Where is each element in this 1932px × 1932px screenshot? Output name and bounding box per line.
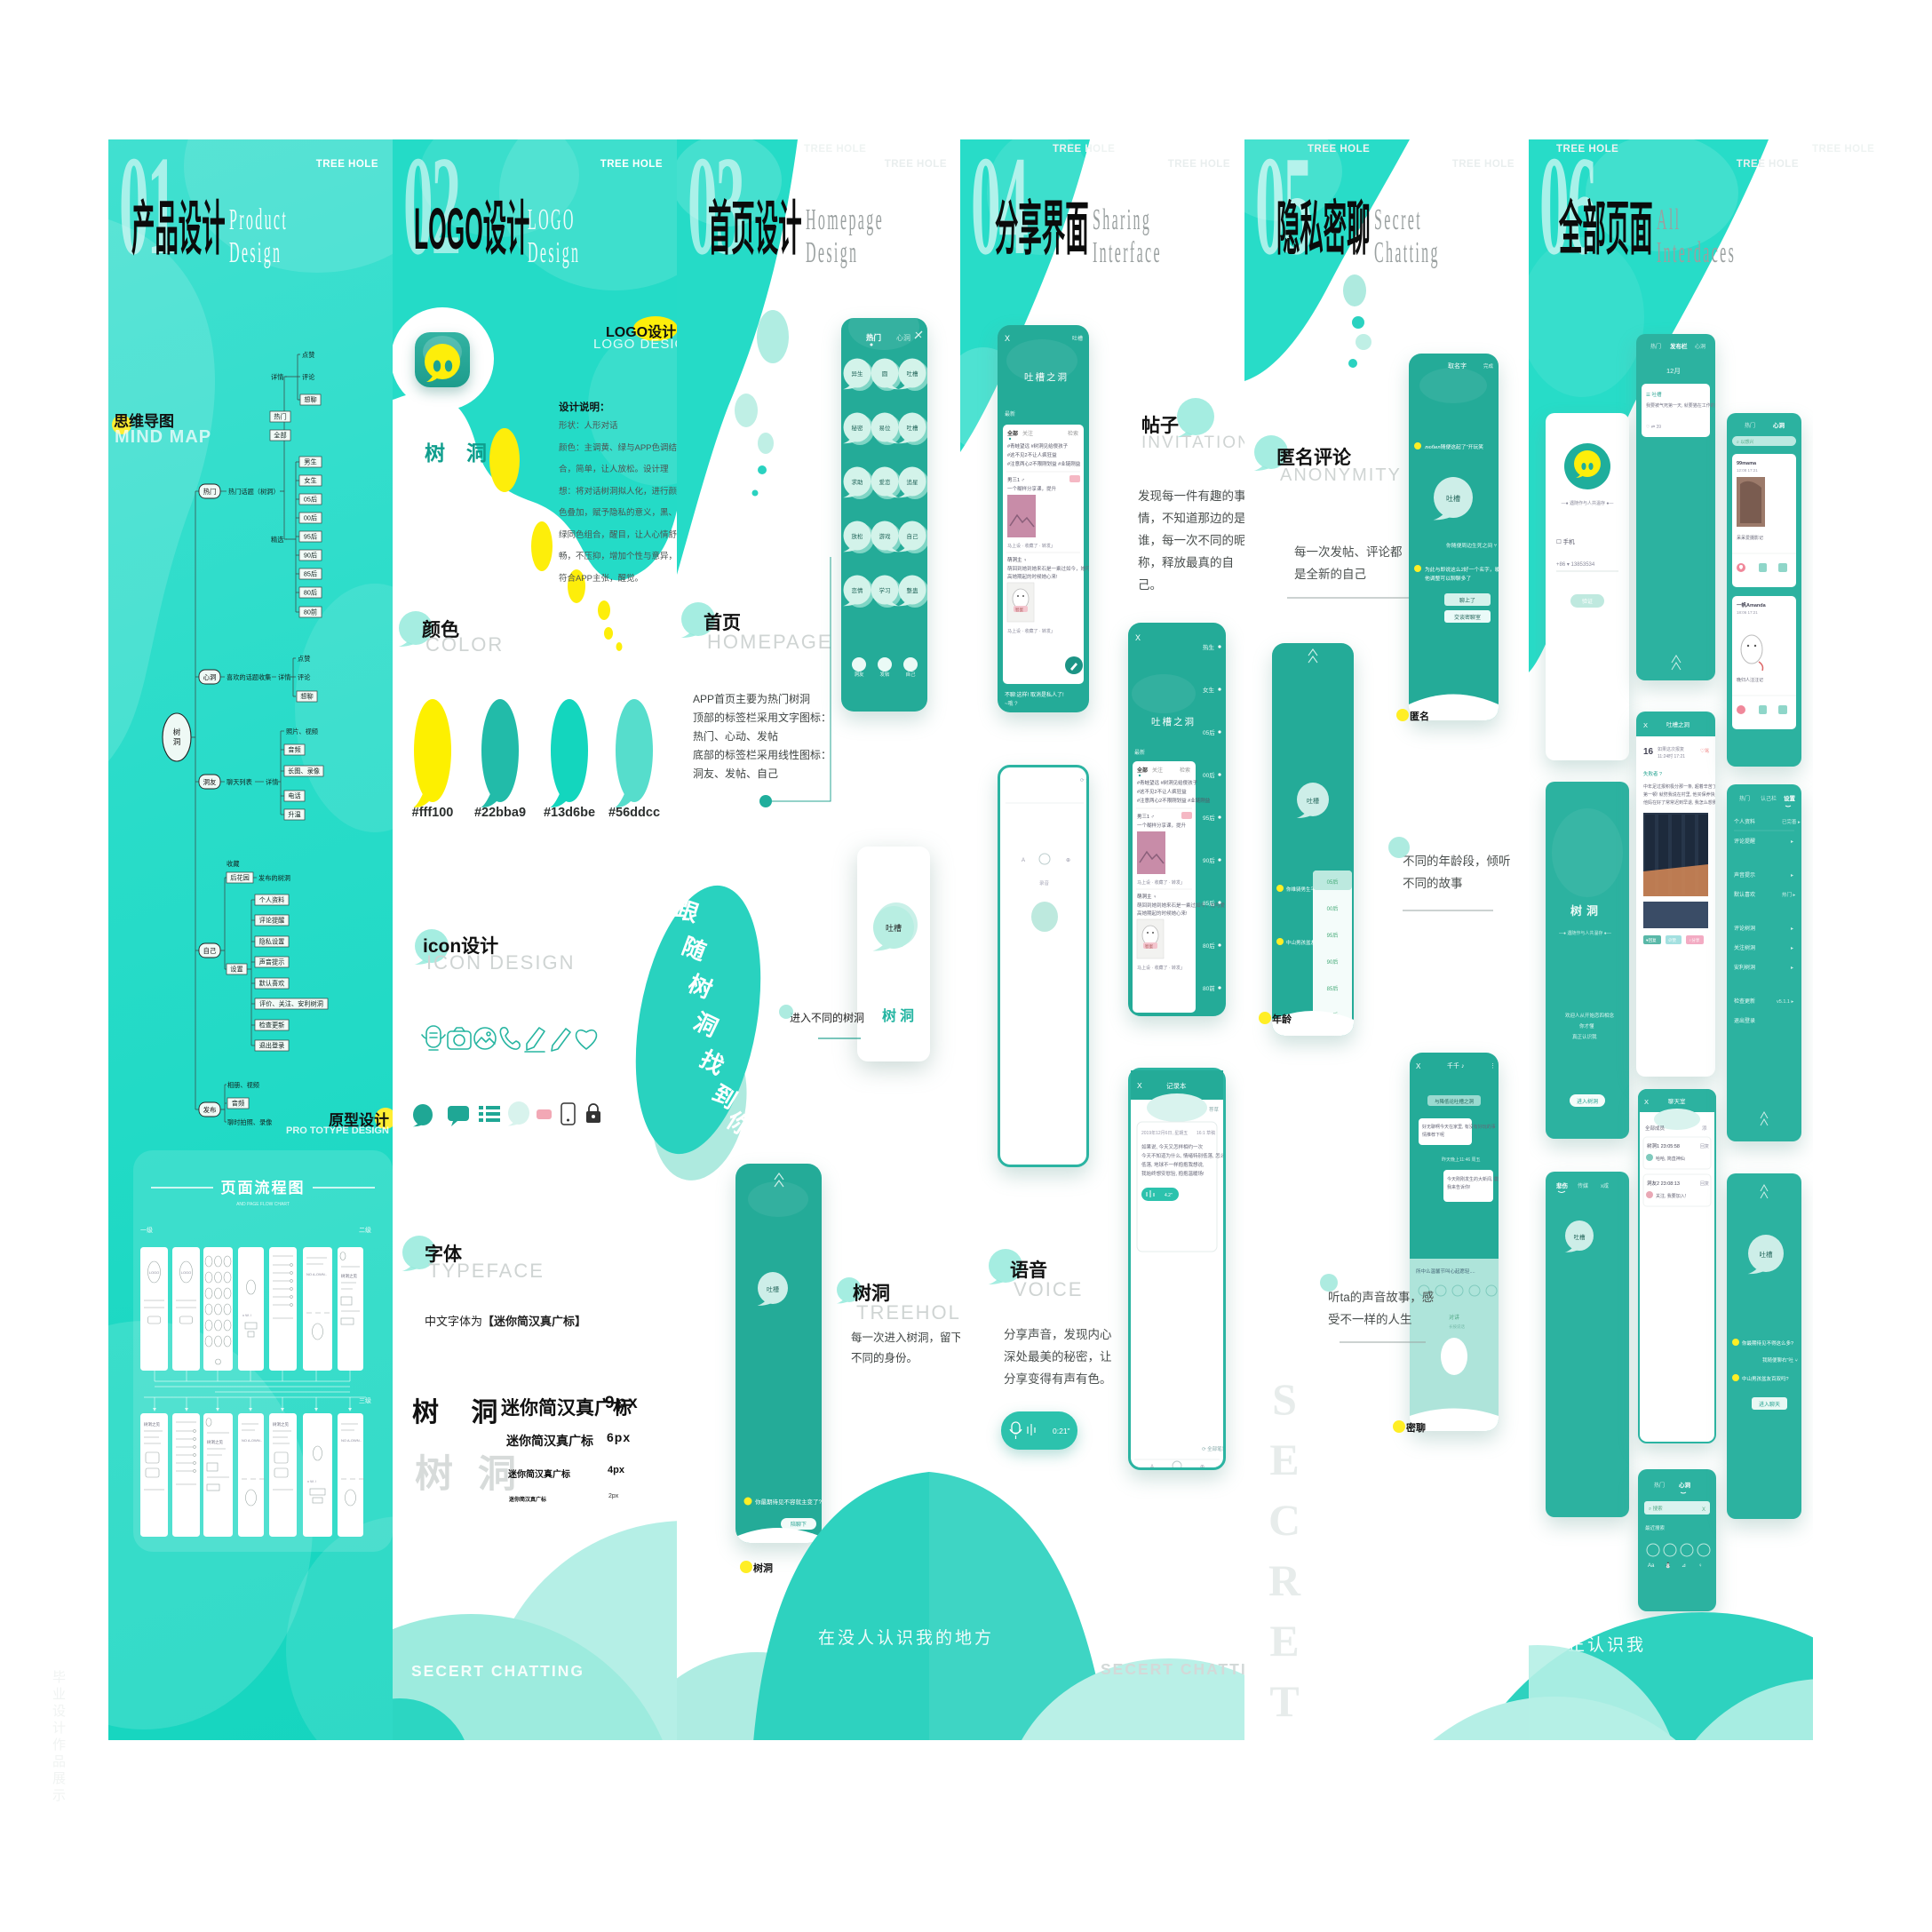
svg-text:页面流程图: 页面流程图 (221, 1179, 306, 1197)
svg-text:树洞之见: 树洞之见 (273, 1421, 289, 1427)
svg-text:树洞之见: 树洞之见 (341, 1273, 357, 1279)
svg-text:二级: 二级 (359, 1226, 371, 1234)
svg-text:NO A-OWN..: NO A-OWN.. (242, 1438, 262, 1443)
svg-text:LOGO: LOGO (149, 1270, 160, 1275)
svg-text:NO A-OWN..: NO A-OWN.. (341, 1438, 362, 1443)
svg-text:x W. /: x W. / (242, 1313, 252, 1317)
svg-text:x W. /: x W. / (307, 1479, 317, 1483)
svg-text:树洞之见: 树洞之见 (144, 1421, 160, 1427)
svg-text:一级: 一级 (140, 1226, 153, 1234)
svg-text:AND PAGE FLOW CHART: AND PAGE FLOW CHART (236, 1202, 290, 1207)
svg-text:NO A-OWN..: NO A-OWN.. (306, 1272, 327, 1276)
svg-text:LOGO: LOGO (181, 1270, 192, 1275)
svg-text:树洞之见: 树洞之见 (207, 1439, 223, 1445)
